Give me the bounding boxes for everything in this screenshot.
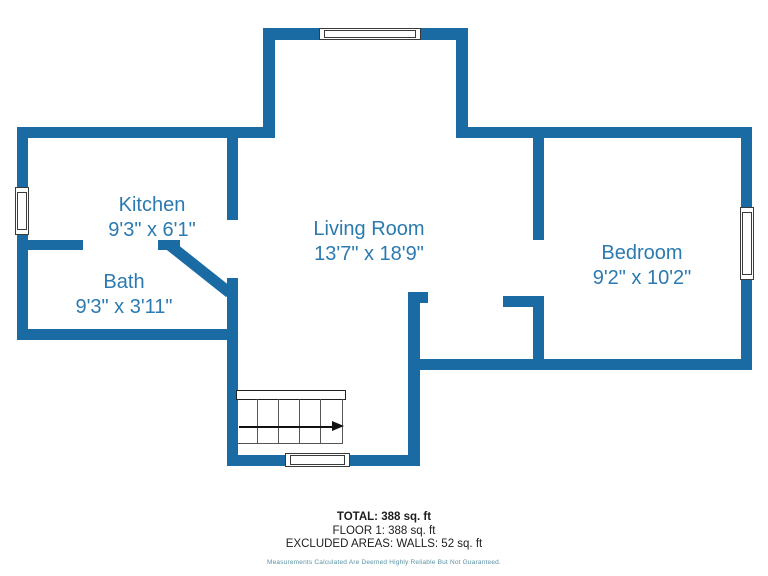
bath-label-block: Bath 9'3" x 3'11" xyxy=(24,270,224,320)
bedroom-bottom-wall xyxy=(408,359,752,370)
staircase xyxy=(236,390,348,455)
total-area-text: TOTAL: 388 sq. ft xyxy=(0,511,768,525)
stair-tread-line xyxy=(320,399,321,444)
door-pane xyxy=(290,455,345,465)
floor-plan: Kitchen 9'3" x 6'1" Bath 9'3" x 3'11" Li… xyxy=(0,0,768,576)
bedroom-dims: 9'2" x 10'2" xyxy=(542,266,742,291)
stairs-arrow-shaft xyxy=(239,426,333,428)
stair-tread-line xyxy=(299,399,300,444)
window-pane xyxy=(324,30,416,38)
stairs-bottom-edge xyxy=(237,443,343,444)
window-pane xyxy=(17,192,27,230)
kitchen-label: Kitchen xyxy=(52,193,252,218)
bedroom-label: Bedroom xyxy=(542,241,742,266)
living-room-dims: 13'7" x 18'9" xyxy=(269,242,469,267)
stairwell-door-jamb xyxy=(418,292,428,303)
disclaimer-text: Measurements Calculated Are Deemed Highl… xyxy=(0,556,768,570)
living-room-label-block: Living Room 13'7" x 18'9" xyxy=(269,217,469,267)
living-room-label: Living Room xyxy=(269,217,469,242)
stairs-landing-bar xyxy=(236,390,346,400)
window-pane xyxy=(742,212,752,275)
bedroom-top-wall xyxy=(456,127,752,138)
excluded-area-text: EXCLUDED AREAS: WALLS: 52 sq. ft xyxy=(0,538,768,552)
stair-tread-line xyxy=(257,399,258,444)
living-bedroom-wall-upper xyxy=(533,138,544,240)
stair-tread-line xyxy=(278,399,279,444)
bedroom-label-block: Bedroom 9'2" x 10'2" xyxy=(542,241,742,291)
kitchen-label-block: Kitchen 9'3" x 6'1" xyxy=(52,193,252,243)
entry-door xyxy=(285,453,350,467)
kitchen-window xyxy=(15,187,29,235)
kitchen-dims: 9'3" x 6'1" xyxy=(52,218,252,243)
bath-label: Bath xyxy=(24,270,224,295)
living-room-window xyxy=(319,28,421,40)
area-summary: TOTAL: 388 sq. ft FLOOR 1: 388 sq. ft EX… xyxy=(0,511,768,569)
stairs-direction-arrow xyxy=(332,421,344,431)
kitchen-top-wall xyxy=(17,127,275,138)
stairwell-right-wall xyxy=(408,292,420,466)
living-room-upper-left-wall xyxy=(263,28,275,138)
bath-dims: 9'3" x 3'11" xyxy=(24,295,224,320)
bedroom-window xyxy=(740,207,754,280)
living-room-upper-right-wall xyxy=(456,28,468,138)
bath-bottom-wall xyxy=(17,329,238,340)
floor1-area-text: FLOOR 1: 388 sq. ft xyxy=(0,525,768,539)
